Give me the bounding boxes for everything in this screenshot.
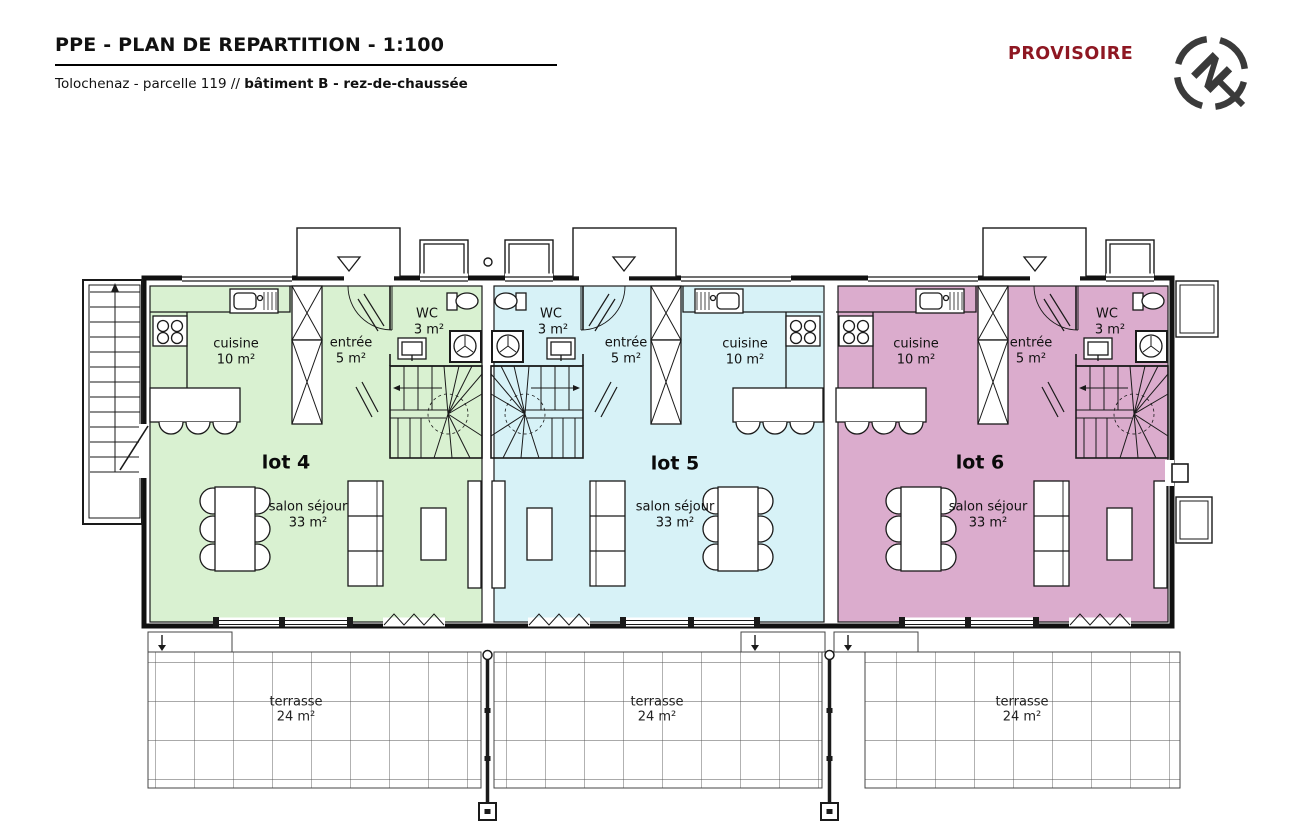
lot4-entree-label: entrée [330, 337, 372, 350]
lot4-wc-area: 3 m² [414, 324, 444, 337]
terraces [148, 632, 1180, 820]
lot5-wc-label: WC [540, 308, 562, 321]
lot4-cuisine-label: cuisine [213, 338, 259, 351]
lot6-salon-label: salon séjour [949, 501, 1028, 514]
lot6-wc-label: WC [1096, 308, 1118, 321]
floor-plan-page: PPE - PLAN DE REPARTITION - 1:100 Toloch… [0, 0, 1292, 839]
lot5-entree-label: entrée [605, 337, 647, 350]
exterior-stair [83, 280, 149, 524]
lot6-cuisine-label: cuisine [893, 338, 939, 351]
lot4-entree-area: 5 m² [336, 353, 366, 366]
lot5-terrasse-area: 24 m² [638, 711, 677, 724]
lot4-salon-area: 33 m² [289, 517, 328, 530]
lot5-terrasse-label: terrasse [630, 696, 683, 709]
lot5-cuisine-label: cuisine [722, 338, 768, 351]
lot4-terrasse-area: 24 m² [277, 711, 316, 724]
lot5-salon-area: 33 m² [656, 517, 695, 530]
lot6-entree-area: 5 m² [1016, 353, 1046, 366]
lot6-cuisine-area: 10 m² [897, 354, 936, 367]
lot5-cuisine-area: 10 m² [726, 354, 765, 367]
lot5-entree-area: 5 m² [611, 353, 641, 366]
lot6-terrasse-area: 24 m² [1003, 711, 1042, 724]
lot4-terrasse-label: terrasse [269, 696, 322, 709]
lot6-salon-area: 33 m² [969, 517, 1008, 530]
lot6-name: lot 6 [956, 454, 1004, 473]
lot5-wc-area: 3 m² [538, 324, 568, 337]
lot6-entree-label: entrée [1010, 337, 1052, 350]
lot4-cuisine-area: 10 m² [217, 354, 256, 367]
lot4-salon-label: salon séjour [269, 501, 348, 514]
party-line-marker [484, 258, 492, 266]
lot5-name: lot 5 [651, 455, 699, 474]
lot5-salon-label: salon séjour [636, 501, 715, 514]
lot6-terrasse-label: terrasse [995, 696, 1048, 709]
lot6-wc-area: 3 m² [1095, 324, 1125, 337]
lot4-name: lot 4 [262, 454, 310, 473]
terrace-divider-post [821, 651, 838, 821]
terrace-divider-post [479, 651, 496, 821]
lot4-wc-label: WC [416, 308, 438, 321]
